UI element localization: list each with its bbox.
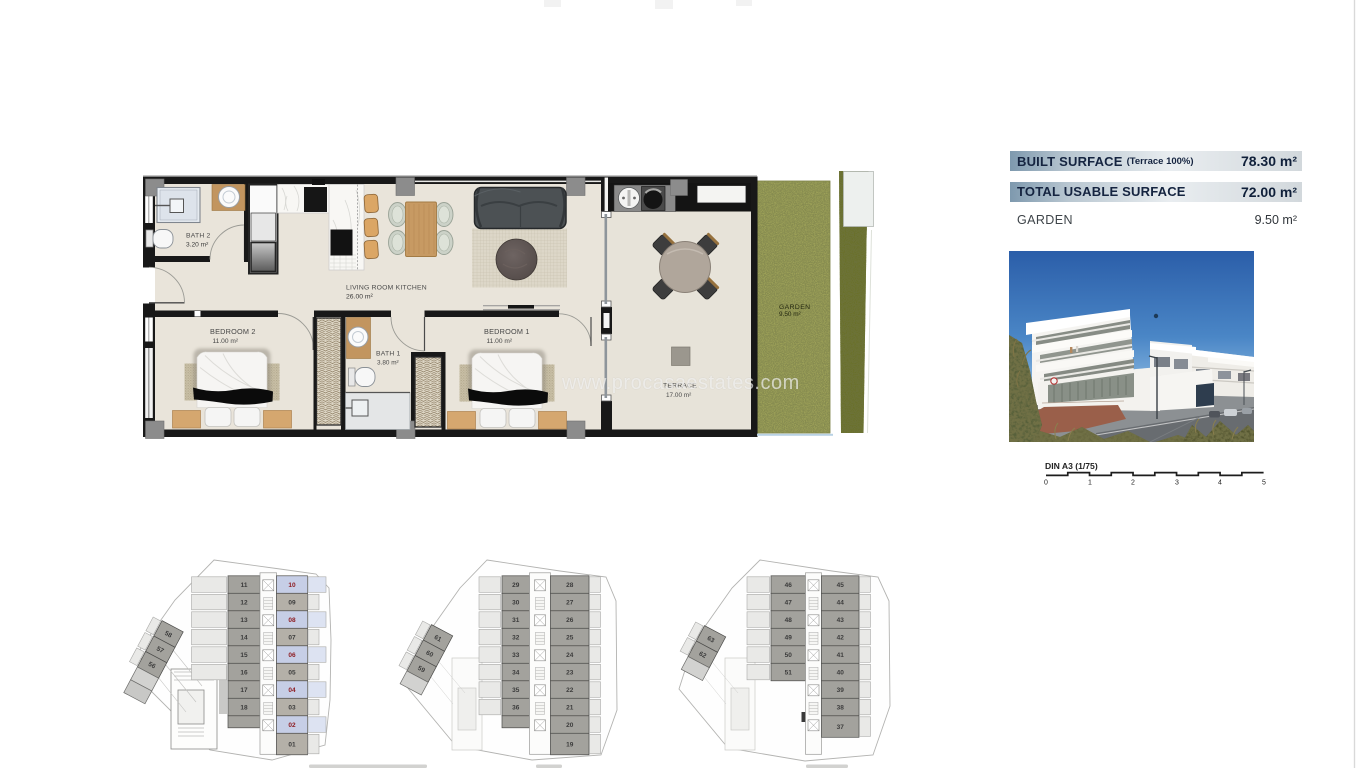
svg-text:BATH 2: BATH 2 xyxy=(186,233,211,240)
svg-text:18: 18 xyxy=(240,704,248,711)
svg-text:01: 01 xyxy=(288,741,296,748)
svg-text:BATH 1: BATH 1 xyxy=(376,351,401,358)
svg-text:34: 34 xyxy=(512,669,520,676)
svg-text:BEDROOM 1: BEDROOM 1 xyxy=(484,327,530,336)
svg-text:36: 36 xyxy=(512,704,520,711)
svg-text:38: 38 xyxy=(837,704,845,711)
svg-text:15: 15 xyxy=(240,652,248,659)
svg-text:14: 14 xyxy=(240,634,248,641)
svg-text:03: 03 xyxy=(288,704,296,711)
svg-text:DIN A3 (1/75): DIN A3 (1/75) xyxy=(1045,461,1098,471)
svg-text:47: 47 xyxy=(785,599,793,606)
svg-text:44: 44 xyxy=(837,599,845,606)
svg-text:10: 10 xyxy=(288,582,296,589)
svg-text:17: 17 xyxy=(240,687,248,694)
svg-text:26.00 m²: 26.00 m² xyxy=(346,294,374,301)
svg-text:05: 05 xyxy=(288,669,296,676)
svg-text:40: 40 xyxy=(837,669,845,676)
svg-text:39: 39 xyxy=(837,687,845,694)
svg-text:3.80 m²: 3.80 m² xyxy=(377,360,399,367)
svg-text:11.00 m²: 11.00 m² xyxy=(487,338,513,345)
svg-text:48: 48 xyxy=(785,617,793,624)
svg-text:3.20 m²: 3.20 m² xyxy=(186,242,209,249)
svg-text:29: 29 xyxy=(512,582,520,589)
svg-text:32: 32 xyxy=(512,634,520,641)
svg-text:09: 09 xyxy=(288,599,296,606)
svg-text:12: 12 xyxy=(240,599,248,606)
svg-text:23: 23 xyxy=(566,669,574,676)
svg-text:GARDEN: GARDEN xyxy=(779,304,810,311)
svg-text:22: 22 xyxy=(566,687,574,694)
svg-text:4: 4 xyxy=(1218,480,1222,487)
svg-text:9.50 m²: 9.50 m² xyxy=(779,311,801,318)
svg-text:16: 16 xyxy=(240,669,248,676)
svg-text:13: 13 xyxy=(240,617,248,624)
svg-text:2: 2 xyxy=(1131,480,1135,487)
svg-text:08: 08 xyxy=(288,617,296,624)
svg-text:41: 41 xyxy=(837,652,845,659)
svg-text:27: 27 xyxy=(566,599,574,606)
svg-text:5: 5 xyxy=(1262,480,1266,487)
svg-text:02: 02 xyxy=(288,722,296,729)
svg-text:3: 3 xyxy=(1175,480,1179,487)
svg-text:11.00 m²: 11.00 m² xyxy=(213,338,239,345)
svg-text:06: 06 xyxy=(288,652,296,659)
svg-text:1: 1 xyxy=(1088,480,1092,487)
svg-text:33: 33 xyxy=(512,652,520,659)
svg-text:46: 46 xyxy=(785,582,793,589)
svg-text:LIVING ROOM KITCHEN: LIVING ROOM KITCHEN xyxy=(346,285,427,292)
svg-text:51: 51 xyxy=(785,669,793,676)
svg-text:30: 30 xyxy=(512,599,520,606)
svg-text:50: 50 xyxy=(785,652,793,659)
svg-text:20: 20 xyxy=(566,722,574,729)
svg-text:37: 37 xyxy=(837,724,845,731)
svg-text:21: 21 xyxy=(566,704,574,711)
svg-text:07: 07 xyxy=(288,634,296,641)
svg-text:42: 42 xyxy=(837,634,845,641)
svg-text:BEDROOM 2: BEDROOM 2 xyxy=(210,327,256,336)
svg-text:26: 26 xyxy=(566,617,574,624)
svg-text:04: 04 xyxy=(288,687,296,694)
svg-text:43: 43 xyxy=(837,617,845,624)
svg-text:49: 49 xyxy=(785,634,793,641)
svg-text:19: 19 xyxy=(566,741,574,748)
svg-text:45: 45 xyxy=(837,582,845,589)
svg-text:35: 35 xyxy=(512,687,520,694)
svg-text:25: 25 xyxy=(566,634,574,641)
svg-text:0: 0 xyxy=(1044,480,1048,487)
svg-text:24: 24 xyxy=(566,652,574,659)
svg-text:11: 11 xyxy=(241,582,248,589)
svg-text:31: 31 xyxy=(512,617,520,624)
svg-text:28: 28 xyxy=(566,582,574,589)
